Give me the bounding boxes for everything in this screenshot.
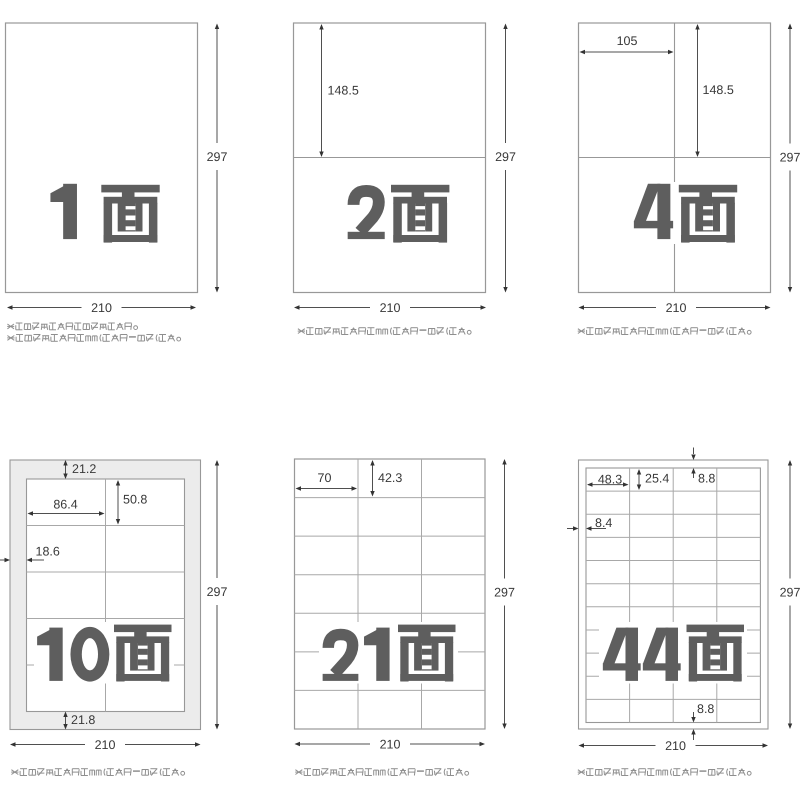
svg-text:148.5: 148.5: [703, 83, 734, 97]
svg-text:18.6: 18.6: [36, 544, 60, 558]
svg-text:210: 210: [665, 739, 686, 753]
svg-text:42.3: 42.3: [378, 471, 402, 485]
svg-text:48.3: 48.3: [598, 473, 622, 487]
svg-text:297: 297: [494, 585, 515, 599]
svg-text:21.2: 21.2: [72, 462, 96, 476]
svg-text:297: 297: [207, 150, 228, 164]
svg-text:70: 70: [318, 471, 332, 485]
svg-text:86.4: 86.4: [53, 498, 77, 512]
svg-text:210: 210: [380, 301, 401, 315]
svg-text:50.8: 50.8: [123, 492, 147, 506]
svg-text:8.8: 8.8: [698, 471, 715, 485]
svg-text:297: 297: [207, 585, 228, 599]
svg-text:210: 210: [95, 738, 116, 752]
svg-text:210: 210: [380, 737, 401, 751]
svg-text:25.4: 25.4: [645, 471, 669, 485]
svg-text:210: 210: [666, 301, 687, 315]
svg-text:297: 297: [780, 150, 800, 164]
svg-text:8.8: 8.8: [697, 702, 714, 716]
svg-text:148.5: 148.5: [328, 83, 359, 97]
svg-text:105: 105: [617, 34, 638, 48]
svg-text:21.8: 21.8: [71, 713, 95, 727]
svg-text:297: 297: [495, 150, 516, 164]
svg-text:297: 297: [780, 585, 800, 599]
svg-text:210: 210: [91, 301, 112, 315]
svg-text:8.4: 8.4: [595, 516, 612, 530]
